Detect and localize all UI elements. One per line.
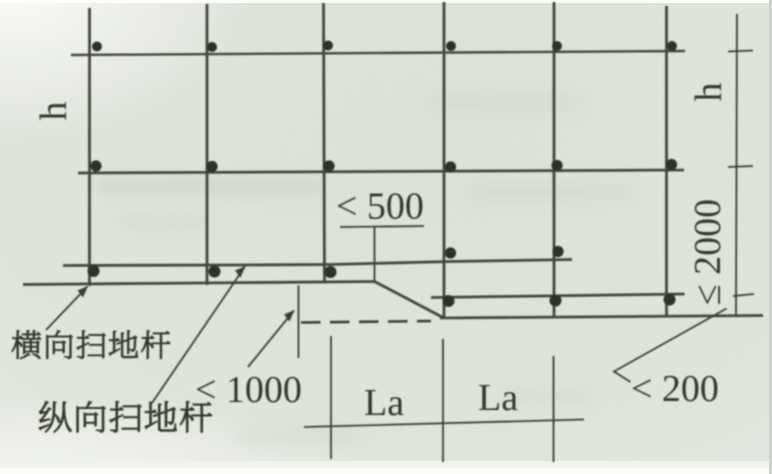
svg-text:≤ 2000: ≤ 2000 bbox=[687, 199, 729, 305]
svg-text:La: La bbox=[478, 377, 518, 419]
svg-text:La: La bbox=[364, 382, 404, 424]
svg-text:h: h bbox=[33, 102, 75, 121]
svg-text:< 500: < 500 bbox=[336, 186, 424, 228]
svg-text:h: h bbox=[688, 83, 730, 102]
svg-text:< 200: < 200 bbox=[631, 368, 719, 410]
